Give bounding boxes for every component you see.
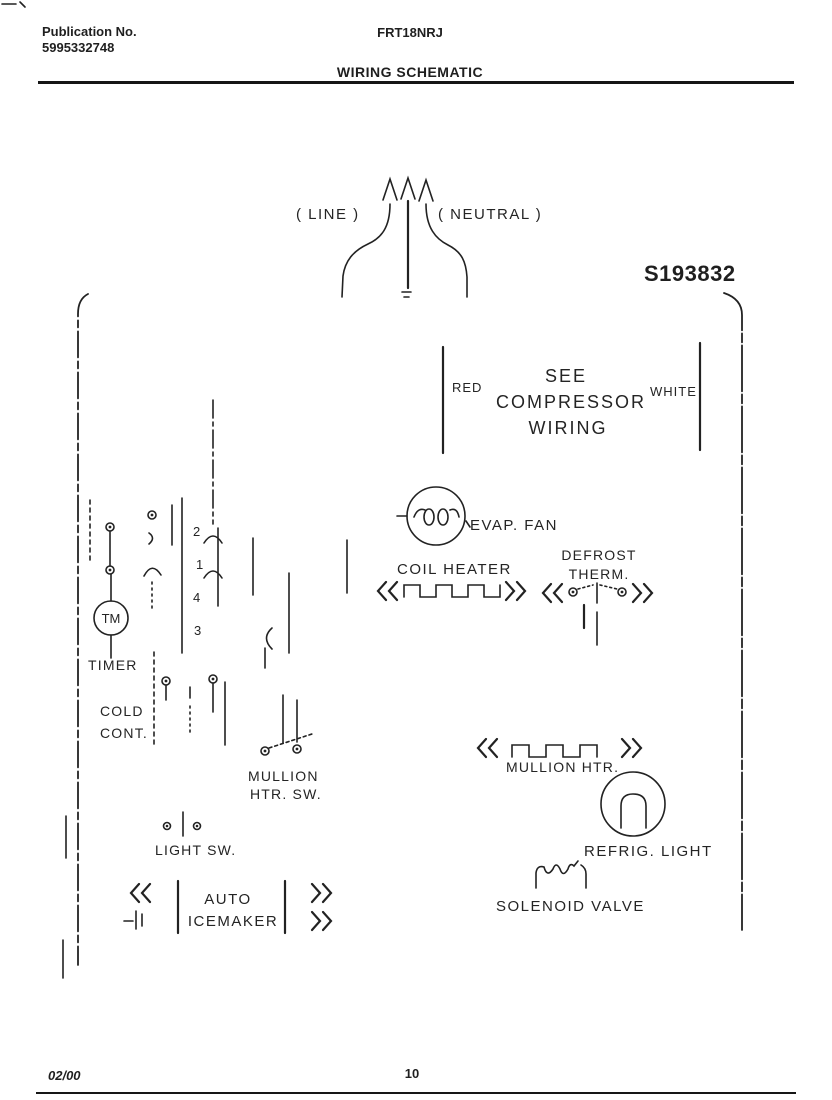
compressor-note-line1: SEE: [545, 366, 587, 386]
connector-right-icon: [506, 582, 525, 600]
compressor-note-line2: COMPRESSOR: [496, 392, 646, 412]
footer-rule: [36, 1092, 796, 1094]
defrost-label-line2: THERM.: [569, 566, 630, 582]
motor-icon: [407, 487, 465, 545]
connector-right-icon: [633, 584, 652, 602]
icemaker-block: AUTO ICEMAKER: [124, 881, 331, 933]
heater-element-icon: [512, 745, 597, 757]
coil-heater-symbol: COIL HEATER: [378, 561, 525, 600]
connector-right-icon: [312, 912, 331, 930]
defrost-label-line1: DEFROST: [561, 547, 636, 563]
connector-right-icon: [312, 884, 331, 902]
footer-date: 02/00: [48, 1068, 81, 1083]
compressor-box: RED WHITE SEE COMPRESSOR WIRING: [443, 343, 700, 453]
timer-terminal-1: 1: [196, 557, 203, 572]
contact-arc-icon: [204, 571, 222, 578]
evap-fan-label: EVAP. FAN: [470, 517, 558, 534]
lamp-icon: [601, 772, 665, 836]
timer-motor-symbol: TM TIMER: [88, 500, 138, 673]
mullion-heater-symbol: MULLION HTR.: [478, 739, 641, 775]
power-cord-entry: ( LINE ) ( NEUTRAL ): [296, 178, 542, 297]
coil-heater-label: COIL HEATER: [397, 561, 512, 578]
connector-left-icon: [378, 582, 397, 600]
timer-terminal-2: 2: [193, 524, 200, 539]
timer-terminal-3: 3: [194, 623, 201, 638]
coil-icon: [536, 861, 586, 888]
connector-left-icon: [131, 884, 150, 902]
contact-arc-icon: [144, 568, 161, 576]
evap-fan-symbol: EVAP. FAN: [397, 487, 558, 545]
white-wire-label: WHITE: [650, 384, 697, 399]
mullion-switch-label-line2: HTR. SW.: [250, 786, 322, 802]
mullion-switch-label-line1: MULLION: [248, 768, 319, 784]
icemaker-label-line2: ICEMAKER: [188, 913, 278, 930]
contact-arc-icon: [204, 536, 222, 543]
cold-control-label-line2: CONT.: [100, 725, 148, 741]
mullion-heater-switch-symbol: MULLION HTR. SW.: [248, 734, 322, 802]
connector-left-icon: [543, 584, 562, 602]
timer-terminal-4: 4: [193, 590, 200, 605]
timer-label: TIMER: [88, 657, 138, 673]
compressor-note-line3: WIRING: [529, 418, 608, 438]
refrig-light-symbol: REFRIG. LIGHT: [584, 772, 713, 860]
cold-control-label-line1: COLD: [100, 703, 144, 719]
arrow-up-icon: [401, 178, 415, 199]
light-switch-symbol: LIGHT SW.: [155, 812, 236, 858]
connector-right-icon: [622, 739, 641, 757]
solenoid-valve-symbol: SOLENOID VALVE: [496, 861, 645, 915]
solenoid-valve-label: SOLENOID VALVE: [496, 898, 645, 915]
wiring-schematic-drawing: ( LINE ) ( NEUTRAL ) RED WHITE SEE COMPR…: [0, 0, 832, 1100]
light-switch-label: LIGHT SW.: [155, 842, 236, 858]
switch-blade-icon: [269, 734, 312, 748]
timer-contact-wires: 2 1 4 3: [144, 400, 347, 653]
mullion-heater-label: MULLION HTR.: [506, 759, 619, 775]
plug-icon: [124, 911, 142, 929]
schematic-page: Publication No. 5995332748 FRT18NRJ WIRI…: [0, 0, 832, 1100]
arrow-up-icon: [383, 179, 397, 200]
contact-arc-icon: [267, 628, 273, 649]
timer-motor-label: TM: [102, 611, 121, 626]
ground-icon: [402, 292, 411, 297]
right-rail: [724, 293, 742, 930]
arrow-up-icon: [419, 180, 433, 201]
line-label: ( LINE ): [296, 206, 360, 223]
neutral-label: ( NEUTRAL ): [438, 206, 542, 223]
icemaker-label-line1: AUTO: [204, 891, 251, 908]
connector-left-icon: [478, 739, 497, 757]
refrig-light-label: REFRIG. LIGHT: [584, 843, 713, 860]
footer-page-number: 10: [400, 1066, 424, 1081]
left-rail: [63, 294, 88, 978]
defrost-thermostat-symbol: DEFROST THERM.: [543, 547, 652, 645]
scan-artifact: [2, 2, 25, 7]
red-wire-label: RED: [452, 380, 482, 395]
heater-element-icon: [404, 585, 500, 597]
